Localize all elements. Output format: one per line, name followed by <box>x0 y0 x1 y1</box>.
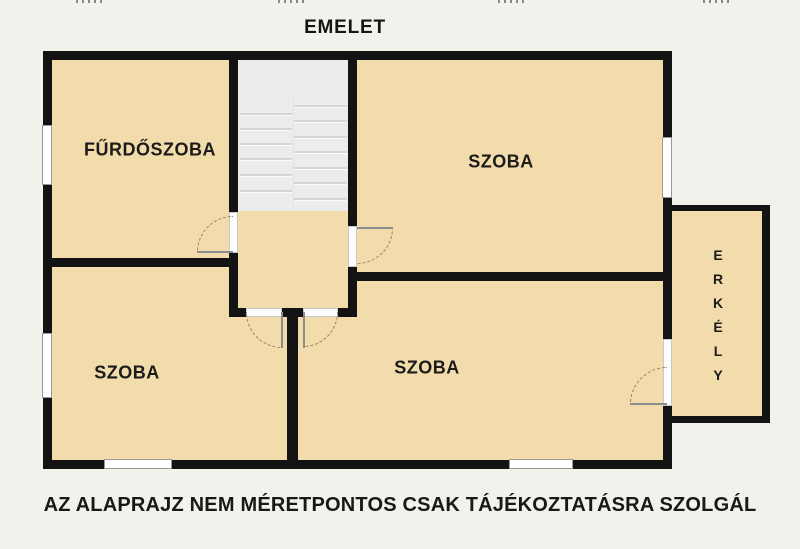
stair-tread <box>240 128 292 130</box>
room-label-bottom-left: SZOBA <box>94 363 160 384</box>
window-bathroom-left <box>42 125 52 185</box>
stair-flight-divider <box>293 98 294 211</box>
stair-tread <box>240 190 292 192</box>
cropped-dimension-mark <box>703 0 733 3</box>
cropped-dimension-mark <box>278 0 308 3</box>
door-top-right-room-leaf <box>357 227 393 229</box>
stair-tread <box>294 151 347 153</box>
cropped-dimension-mark <box>498 0 528 3</box>
wall-bottom-rooms-divider <box>287 308 298 460</box>
room-label-bottom-right: SZOBA <box>394 358 460 379</box>
wall-right-rooms-divider <box>348 272 663 281</box>
room-label-bathroom: FŰRDŐSZOBA <box>84 140 216 161</box>
door-bottom-right-room-leaf <box>303 312 305 348</box>
door-bathroom-leaf <box>197 251 233 253</box>
room-label-top-right: SZOBA <box>468 152 534 173</box>
window-bottom-left-room-left <box>42 333 52 398</box>
stair-tread <box>294 198 347 200</box>
stair-tread <box>294 182 347 184</box>
room-label-balcony: ERKÉLY <box>710 243 726 387</box>
stair-tread <box>294 120 347 122</box>
stair-tread <box>294 105 347 107</box>
wall-hall-bottom-right <box>338 308 357 317</box>
door-bottom-left-room-leaf <box>281 312 283 348</box>
stair-tread <box>240 113 292 115</box>
stair-tread <box>294 136 347 138</box>
stair-tread <box>294 167 347 169</box>
wall-bathroom-divider <box>43 258 238 267</box>
stair-tread <box>240 174 292 176</box>
door-balcony-leaf <box>630 403 667 405</box>
window-bottom-left-room-bottom <box>104 459 172 469</box>
cropped-dimension-mark <box>76 0 106 3</box>
page-title: EMELET <box>0 17 690 39</box>
stair-tread <box>240 143 292 145</box>
wall-stair-right-upper <box>348 51 357 227</box>
stair-tread <box>240 158 292 160</box>
wall-hall-bottom-left <box>229 308 246 317</box>
wall-stair-left-upper <box>229 51 238 213</box>
disclaimer-text: AZ ALAPRAJZ NEM MÉRETPONTOS CSAK TÁJÉKOZ… <box>0 494 800 517</box>
window-bottom-right-room-bottom <box>509 459 573 469</box>
window-top-right-room-right <box>662 137 672 198</box>
door-top-right-room <box>348 226 357 267</box>
